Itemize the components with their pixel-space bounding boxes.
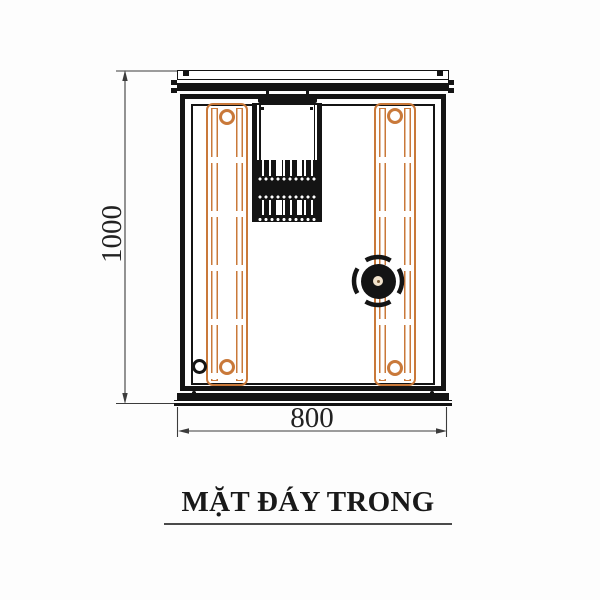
round-hole	[192, 359, 207, 374]
teeth-gap	[298, 200, 302, 215]
height-dimension-label: 1000	[97, 184, 127, 284]
bracket-cap	[258, 95, 317, 103]
slotted-bracket	[252, 103, 322, 222]
bottom-inner-face-drawing: 1000 800 MẶT ĐÁY TRONG	[0, 0, 600, 600]
bottom-edge-bar	[177, 393, 449, 400]
top-trim-profile	[177, 70, 449, 80]
rail-channel	[404, 108, 411, 381]
teeth-gap	[298, 160, 302, 176]
drawing-title: MẶT ĐÁY TRONG	[164, 486, 452, 525]
teeth-gap	[278, 160, 282, 176]
bracket-dot	[261, 107, 264, 110]
top-edge-bar	[177, 83, 449, 91]
vent-teeth-row	[257, 200, 317, 215]
vent-teeth-row	[257, 160, 317, 176]
rail-channel	[379, 108, 386, 381]
knob-center-pin	[377, 280, 380, 283]
width-dimension-label: 800	[281, 403, 343, 433]
rivet-dot-row	[257, 217, 317, 222]
trim-notch-right	[437, 71, 443, 76]
slide-rail-left	[206, 103, 248, 386]
rail-channel	[236, 108, 243, 381]
slide-rail-right	[374, 103, 416, 386]
teeth-gap	[278, 200, 282, 215]
rail-hole-bottom-left	[219, 359, 235, 375]
rail-hole-top-left	[219, 109, 235, 125]
bracket-dot	[310, 107, 313, 110]
trim-notch-left	[183, 71, 189, 76]
rail-channel	[211, 108, 218, 381]
rail-hole-bottom-right	[387, 360, 403, 376]
solid-band	[257, 182, 317, 194]
rail-hole-top-right	[387, 108, 403, 124]
